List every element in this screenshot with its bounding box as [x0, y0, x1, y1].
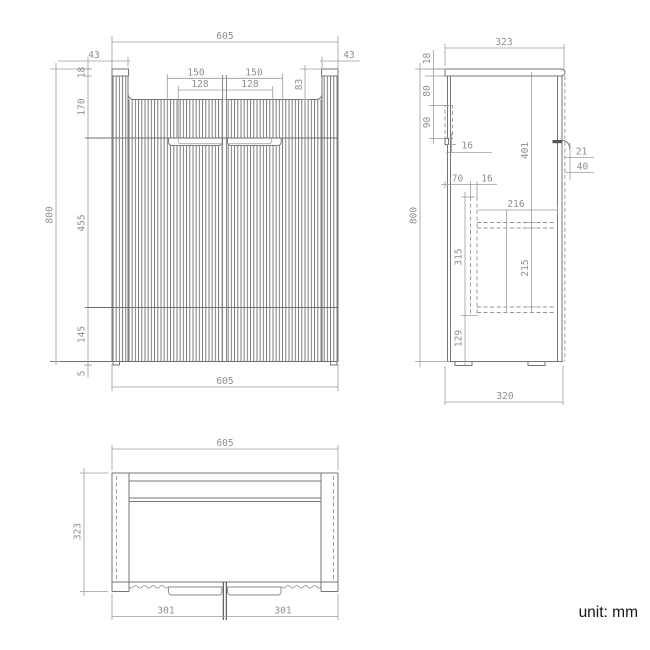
dim-front-width-bottom: 605 — [216, 376, 233, 387]
handle-curve — [562, 140, 570, 149]
plan-body — [112, 473, 338, 620]
right-column-flutes — [322, 76, 338, 362]
drawing-page: 605 43 43 150 150 128 128 83 — [0, 0, 650, 650]
dim-shelf-clearance: 215 — [520, 259, 531, 276]
top-view: 605 323 301 301 — [73, 438, 339, 620]
handle-groove — [553, 140, 563, 143]
dim-panel-thickness: 16 — [481, 174, 493, 185]
dim-plan-width: 605 — [216, 438, 233, 449]
dim-back-clearance: 70 — [452, 174, 464, 185]
dim-recess-depth: 83 — [294, 79, 305, 90]
dim-handle-height: 40 — [577, 162, 589, 173]
dim-front-width-top: 605 — [216, 31, 233, 42]
dim-plan-depth: 323 — [73, 523, 84, 540]
dim-internal-depth: 216 — [507, 199, 524, 210]
dim-drawer-height: 145 — [77, 326, 88, 343]
side-back-foot — [455, 362, 472, 366]
side-cabinet-body — [445, 69, 570, 366]
dim-handle-inner-right: 128 — [241, 79, 258, 90]
flute-wave-right — [281, 586, 321, 589]
side-dimensions: 323 18 80 90 16 70 16 — [409, 37, 595, 405]
dim-handle-span-right: 150 — [245, 67, 262, 78]
front-view: 605 43 43 150 150 128 128 83 — [45, 31, 361, 391]
dim-handle-span-left: 150 — [187, 67, 204, 78]
dim-foot-height: 5 — [77, 371, 88, 377]
dim-door-height: 455 — [77, 214, 88, 231]
dim-bracket-lip: 16 — [462, 141, 474, 152]
front-right-foot — [331, 362, 338, 366]
plan-handle-left — [169, 587, 223, 595]
dim-door-width-left: 301 — [157, 606, 174, 617]
technical-drawing: 605 43 43 150 150 128 128 83 — [0, 0, 650, 650]
left-column-cap — [112, 69, 129, 76]
dim-side-top-thickness: 18 — [422, 53, 433, 65]
dim-side-total-height: 800 — [409, 207, 420, 224]
unit-note: unit: mm — [579, 604, 638, 621]
dim-top-thickness: 18 — [77, 67, 88, 79]
recess-edge — [128, 93, 322, 100]
dim-side-panel-left: 43 — [88, 50, 99, 61]
plan-handle-right — [228, 587, 282, 595]
dim-bracket-offset: 80 — [422, 85, 433, 97]
dim-bottom-clearance: 129 — [454, 330, 465, 347]
drawer-box-hidden — [471, 197, 557, 316]
left-column-flutes — [113, 76, 129, 362]
countertop-slab — [445, 69, 565, 76]
dim-front-total-height: 800 — [45, 206, 56, 223]
dim-door-width-right: 301 — [274, 606, 291, 617]
dim-bracket-height: 90 — [422, 117, 433, 129]
dim-side-panel-right: 43 — [343, 50, 354, 61]
right-column-cap — [322, 69, 339, 76]
side-front-foot — [528, 362, 545, 366]
dim-drawer-box-height: 315 — [454, 248, 465, 265]
dim-upper-inner-height: 401 — [520, 142, 531, 159]
dim-depth-top: 323 — [495, 37, 512, 48]
dim-upper-section: 170 — [77, 98, 88, 115]
front-cabinet-body — [50, 69, 338, 365]
bracket-lip — [445, 139, 449, 145]
side-view: 323 18 80 90 16 70 16 — [409, 37, 595, 405]
dim-depth-bottom: 320 — [496, 391, 513, 402]
dim-handle-depth: 21 — [576, 147, 588, 158]
flute-wave-left — [129, 586, 169, 589]
front-left-foot — [113, 362, 120, 366]
dim-handle-inner-left: 128 — [191, 79, 208, 90]
